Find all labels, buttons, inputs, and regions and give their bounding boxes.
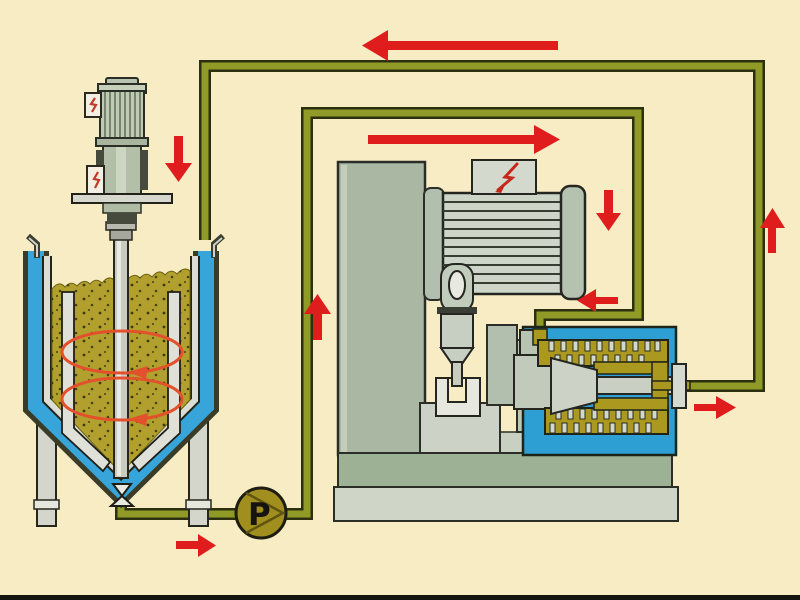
coupling-cylinder <box>441 314 473 348</box>
process-diagram: P <box>0 0 800 600</box>
machine-base-lower <box>334 487 678 521</box>
machine-base-upper <box>338 453 672 487</box>
gearbox-highlight <box>116 147 126 195</box>
bearing-collar-2 <box>107 213 137 224</box>
bottom-edge <box>0 595 800 600</box>
bearing-collar-1 <box>103 203 141 213</box>
pump-label: P <box>248 497 271 533</box>
circulation-pump: P <box>236 488 286 538</box>
coupling-band <box>437 307 477 314</box>
leg-collar-right <box>186 500 211 509</box>
leg-collar-left <box>34 500 59 509</box>
coupling-window <box>449 271 465 299</box>
outlet-flange <box>672 364 686 408</box>
motor-flange <box>96 138 148 146</box>
column-edge-highlight <box>341 165 347 452</box>
diagram-canvas: P <box>0 0 800 600</box>
shaft-highlight <box>117 202 121 476</box>
grinding-chamber <box>514 327 690 455</box>
coupling-stack <box>436 264 480 416</box>
mounting-plate <box>72 194 172 203</box>
bearing-pedestal <box>487 325 517 405</box>
stem <box>452 362 462 386</box>
stand-column <box>338 162 425 455</box>
shaft-collar-2 <box>110 230 132 240</box>
motor-end-cap <box>561 186 585 299</box>
gearbox-flange-right <box>140 150 148 190</box>
agitator-motor <box>100 91 144 139</box>
channel-mid-bottom <box>594 398 668 410</box>
